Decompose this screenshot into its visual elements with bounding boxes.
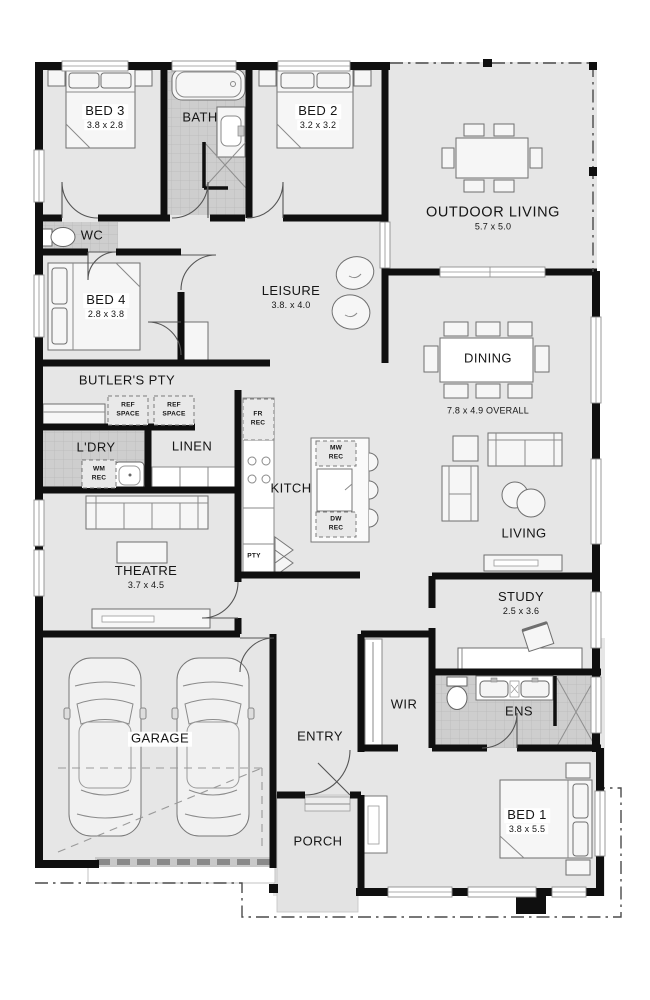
driveway-apron xyxy=(88,866,275,883)
ens-toilet xyxy=(447,677,467,710)
label-dw-rec: DW REC xyxy=(329,515,344,532)
window xyxy=(388,887,452,897)
room-label-bed4: BED 4 2.8 x 3.8 xyxy=(83,293,129,319)
room-label-dining: DINING xyxy=(464,352,512,367)
room-label-living: LIVING xyxy=(501,527,546,542)
window xyxy=(34,550,44,596)
window xyxy=(380,222,390,268)
window xyxy=(278,61,350,71)
window xyxy=(591,459,601,544)
room-label-outdoor-living: OUTDOOR LIVING 5.7 x 5.0 xyxy=(426,204,560,231)
window xyxy=(34,275,44,337)
label-fr-rec: FR REC xyxy=(251,410,266,427)
window xyxy=(34,500,44,546)
window xyxy=(552,887,586,897)
window xyxy=(591,677,601,733)
ens-vanity xyxy=(476,676,553,700)
room-label-bed3: BED 3 3.8 x 2.8 xyxy=(82,104,128,130)
window xyxy=(62,61,128,71)
label-wm-rec: WM REC xyxy=(92,465,107,482)
room-label-entry: ENTRY xyxy=(297,730,343,745)
room-label-bath: BATH xyxy=(182,111,217,126)
wir-robe xyxy=(365,639,382,745)
window xyxy=(591,592,601,648)
room-label-wir: WIR xyxy=(391,698,417,713)
garage-door xyxy=(95,857,273,867)
sliding-door xyxy=(440,267,545,277)
room-label-garage: GARAGE xyxy=(128,732,192,747)
room-label-kitch: KITCH xyxy=(271,482,312,497)
bathtub xyxy=(172,69,245,100)
garage-car-1 xyxy=(64,658,146,836)
garage-car-2 xyxy=(172,658,254,836)
porch-steps xyxy=(305,797,350,811)
window xyxy=(172,61,236,71)
room-label-bed1: BED 1 3.8 x 5.5 xyxy=(504,808,550,834)
room-dims-dining: 7.8 x 4.9 OVERALL xyxy=(447,404,529,415)
window xyxy=(34,150,44,202)
porch-post xyxy=(269,884,278,893)
bath-vanity xyxy=(217,107,245,157)
room-label-wc: WC xyxy=(81,229,103,244)
room-label-linen: LINEN xyxy=(172,440,212,455)
porch-slab xyxy=(277,795,358,912)
room-label-bed2: BED 2 3.2 x 3.2 xyxy=(295,104,341,130)
label-pty: PTY xyxy=(247,553,260,562)
window xyxy=(595,791,605,856)
bed4-robe xyxy=(184,322,208,362)
label-ref-space-1: REF SPACE xyxy=(116,401,139,418)
room-label-ens: ENS xyxy=(505,705,533,720)
island-stools xyxy=(369,453,378,527)
room-label-butlers-pty: BUTLER'S PTY xyxy=(79,374,175,389)
window xyxy=(468,887,536,897)
wall-step xyxy=(516,896,546,914)
room-label-porch: PORCH xyxy=(294,835,343,850)
room-label-leisure: LEISURE 3.8. x 4.0 xyxy=(262,284,320,310)
room-label-theatre: THEATRE 3.7 x 4.5 xyxy=(115,564,178,590)
room-label-ldry: L'DRY xyxy=(77,441,116,456)
label-mw-rec: MW REC xyxy=(329,444,344,461)
label-ref-space-2: REF SPACE xyxy=(162,401,185,418)
room-label-study: STUDY 2.5 x 3.6 xyxy=(498,590,544,616)
linen-shelf xyxy=(152,467,235,489)
floor-plan-drawing xyxy=(0,0,650,1000)
floor-plan: BED 3 3.8 x 2.8 BATH BED 2 3.2 x 3.2 OUT… xyxy=(0,0,650,1000)
window xyxy=(591,317,601,403)
wc-toilet xyxy=(42,228,75,247)
entry-nook xyxy=(363,796,387,853)
laundry-sink xyxy=(115,462,144,489)
